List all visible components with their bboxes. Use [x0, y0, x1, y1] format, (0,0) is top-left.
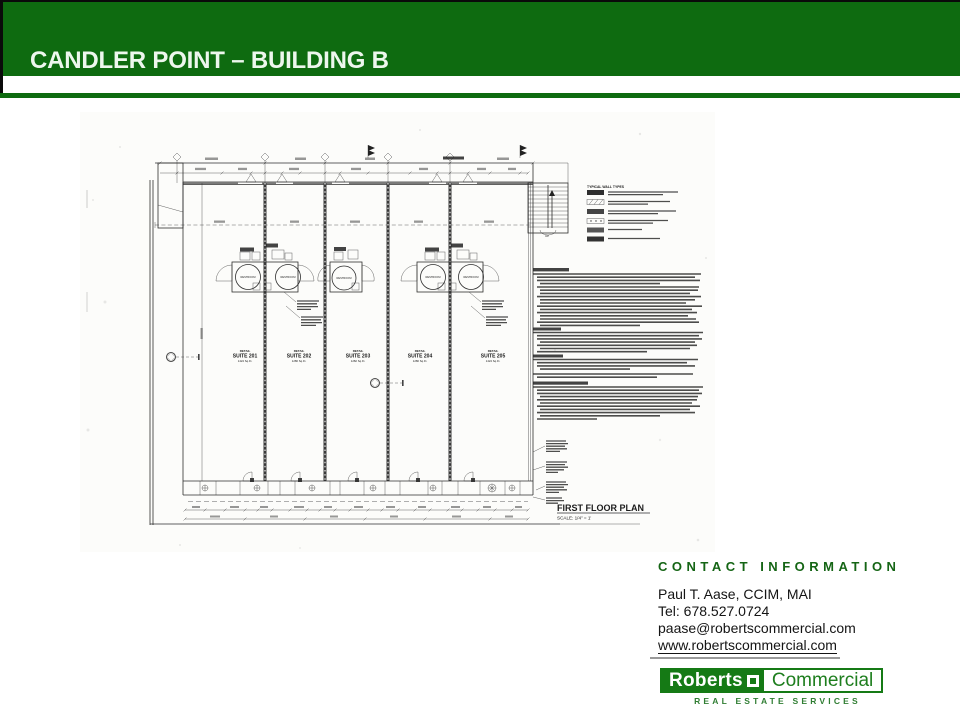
plan-scale-text: SCALE: 1/4" = 1' [557, 516, 591, 521]
grid-markers [173, 145, 527, 183]
logo-tagline: REAL ESTATE SERVICES [660, 696, 895, 706]
slide-left-edge [0, 0, 3, 98]
bottom-storefront [183, 472, 533, 521]
restroom-cluster: RESTROOM RESTROOM [216, 244, 323, 326]
svg-text:RETAIL: RETAIL [488, 349, 499, 353]
revision-flag-icon [368, 145, 527, 158]
svg-text:1282 Sq.Ft.: 1282 Sq.Ft. [351, 359, 366, 363]
plan-title-text: FIRST FLOOR PLAN [557, 503, 644, 513]
suite-label: RETAIL SUITE 202 1280 Sq.Ft. [287, 349, 312, 363]
svg-text:RETAIL: RETAIL [353, 349, 364, 353]
suite-label: RETAIL SUITE 203 1282 Sq.Ft. [346, 349, 371, 363]
entry-door-swing-icon [246, 174, 473, 182]
restroom-label: RESTROOM [426, 275, 441, 279]
stair-up-label: UP [545, 234, 549, 238]
legend-title: TYPICAL WALL TYPES [587, 185, 625, 189]
entry-door-swing-icon [243, 472, 475, 482]
svg-text:RETAIL: RETAIL [294, 349, 305, 353]
leader-notes [533, 441, 568, 503]
restroom-label: RESTROOM [337, 276, 352, 280]
suite-label: RETAIL SUITE 204 1280 Sq.Ft. [408, 349, 433, 363]
page-title: CANDLER POINT – BUILDING B [30, 47, 389, 75]
restroom-label: RESTROOM [281, 275, 296, 279]
floor-plan-drawing: RESTROOM RESTROOM RESTROOM [85, 115, 710, 550]
wall-type-legend: TYPICAL WALL TYPES [587, 185, 678, 242]
general-notes [533, 268, 703, 419]
demising-walls [265, 183, 450, 481]
contact-website-link[interactable]: www.robertscommercial.com [658, 637, 837, 653]
logo-word-commercial: Commercial [762, 668, 883, 693]
svg-text:1424 Sq.Ft.: 1424 Sq.Ft. [486, 359, 501, 363]
svg-text:RETAIL: RETAIL [415, 349, 426, 353]
contact-phone: Tel: 678.527.0724 [658, 603, 769, 619]
svg-text:1280 Sq.Ft.: 1280 Sq.Ft. [292, 359, 307, 363]
suite-label: RETAIL SUITE 205 1424 Sq.Ft. [481, 349, 506, 363]
roberts-commercial-logo: Roberts Commercial [660, 668, 883, 693]
column-symbol-icon [202, 485, 515, 491]
stair: UP [528, 183, 568, 238]
svg-text:1280 Sq.Ft.: 1280 Sq.Ft. [413, 359, 428, 363]
logo-divider-line [650, 657, 840, 659]
building-outline [155, 163, 568, 495]
svg-text:RETAIL: RETAIL [240, 349, 251, 353]
slide: CANDLER POINT – BUILDING B [0, 0, 960, 720]
contact-heading: CONTACT INFORMATION [658, 559, 900, 574]
plan-title: FIRST FLOOR PLAN SCALE: 1/4" = 1' [557, 503, 650, 521]
logo-square-icon [747, 675, 759, 687]
svg-text:1424 Sq.Ft.: 1424 Sq.Ft. [238, 359, 253, 363]
fan-symbol-icon [488, 484, 496, 492]
contact-name: Paul T. Aase, CCIM, MAI [658, 586, 812, 602]
restroom-label: RESTROOM [241, 275, 256, 279]
top-dimension-lines [155, 157, 535, 175]
restroom-label: RESTROOM [464, 275, 479, 279]
slide-top-edge [0, 0, 960, 2]
contact-email[interactable]: paase@robertscommercial.com [658, 620, 856, 636]
restroom-cluster: RESTROOM RESTROOM [401, 244, 508, 326]
logo-word-roberts: Roberts [669, 670, 743, 692]
suite-label: RETAIL SUITE 201 1424 Sq.Ft. [233, 349, 258, 363]
header-divider-line [0, 93, 960, 98]
logo-roberts-box: Roberts [660, 668, 762, 693]
